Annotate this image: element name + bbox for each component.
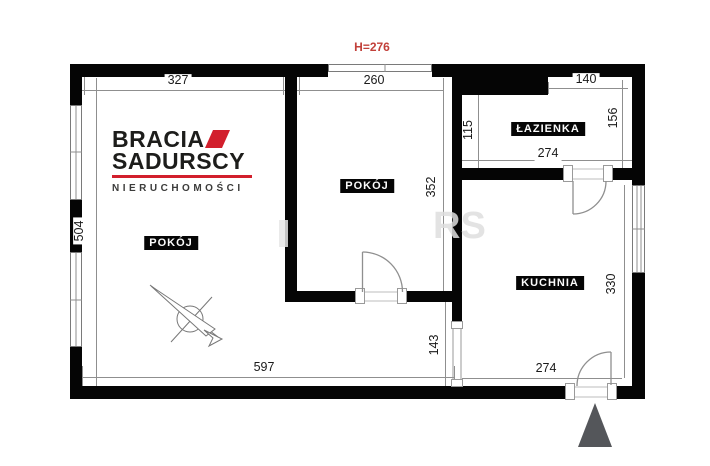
dim-kitchen-bottom: 274: [533, 362, 560, 376]
dim-bottom-width: 597: [251, 361, 278, 375]
wall-bathroom-bottom-b: [612, 168, 632, 180]
window-top-room-middle: [328, 64, 432, 72]
room-label-lazienka: ŁAZIENKA: [511, 122, 585, 136]
dim-bathroom-top: 140: [573, 73, 600, 87]
dimline-597: [82, 377, 455, 378]
jamb-entrance-right: [607, 383, 617, 400]
dimline-274-kitchen: [462, 378, 622, 379]
floor-plan: 327 260 140 115 156 274 352 504 143 330 …: [0, 0, 710, 466]
entrance-arrow-icon: [578, 403, 612, 447]
wall-room-middle-bottom-a: [285, 291, 355, 302]
wall-bathroom-bottom-a: [452, 168, 564, 180]
window-right-kitchen: [632, 185, 645, 273]
jamb-passage-top: [451, 321, 463, 329]
dimtick-327-l: [84, 77, 85, 95]
dimline-260: [297, 90, 443, 91]
dim-room-left-top: 327: [165, 74, 192, 88]
dimline-352: [443, 78, 444, 293]
north-needle-icon: [150, 285, 222, 346]
dimline-327: [82, 90, 285, 91]
dimline-504: [96, 78, 97, 386]
door-bathroom: [573, 181, 606, 214]
brand-tagline: NIERUCHOMOŚCI: [112, 183, 252, 194]
wall-right-lower: [632, 273, 645, 398]
jamb-room-middle-door-left: [355, 288, 365, 304]
dimline-143: [445, 302, 446, 386]
jamb-bathroom-door-left: [563, 165, 573, 182]
jamb-bathroom-door-right: [603, 165, 613, 182]
dimline-156: [622, 80, 623, 168]
dimline-115: [478, 95, 479, 168]
brand-name-bottom: SADURSCY: [112, 150, 252, 172]
dimline-140: [548, 88, 628, 89]
ceiling-height-note: H=276: [354, 40, 390, 54]
jamb-passage-bottom: [451, 379, 463, 387]
dim-bathroom-right: 156: [607, 105, 621, 132]
door-entrance: [577, 352, 611, 386]
dim-room-middle-height: 352: [425, 174, 439, 201]
brand-red-rule: [112, 175, 252, 178]
wall-right-upper: [632, 64, 645, 185]
dim-kitchen-right: 330: [605, 271, 619, 298]
room-label-pokoj-middle: POKÓJ: [340, 179, 394, 193]
wall-bottom-left: [70, 386, 565, 399]
brand-logo: BRACIA SADURSCY NIERUCHOMOŚCI: [112, 128, 252, 194]
window-left-lower: [70, 252, 82, 347]
dimtick-140-l: [548, 82, 549, 94]
dim-bathroom-bottom: 274: [535, 147, 562, 161]
dimtick-327-r: [283, 77, 284, 95]
dim-hall: 143: [428, 332, 442, 359]
wall-left-upper: [70, 64, 82, 105]
dim-left-wall: 504: [73, 218, 87, 245]
wall-room-middle-bottom-b: [407, 291, 455, 302]
jamb-entrance-left: [565, 383, 575, 400]
door-room-middle: [363, 252, 403, 292]
dimline-330: [624, 185, 625, 378]
dim-bathroom-left: 115: [462, 117, 476, 143]
brand-red-mark-icon: [205, 130, 230, 148]
wall-between-rooms: [285, 64, 297, 302]
brand-name-top: BRACIA: [112, 128, 204, 150]
duct-block: [452, 64, 548, 95]
room-label-pokoj-left: POKÓJ: [144, 236, 198, 250]
dimtick-597-l: [82, 366, 83, 386]
dimtick-260-l: [299, 77, 300, 95]
room-label-kuchnia: KUCHNIA: [516, 276, 584, 290]
dim-room-middle-top: 260: [361, 74, 388, 88]
window-left-upper: [70, 105, 82, 200]
jamb-room-middle-door-right: [397, 288, 407, 304]
